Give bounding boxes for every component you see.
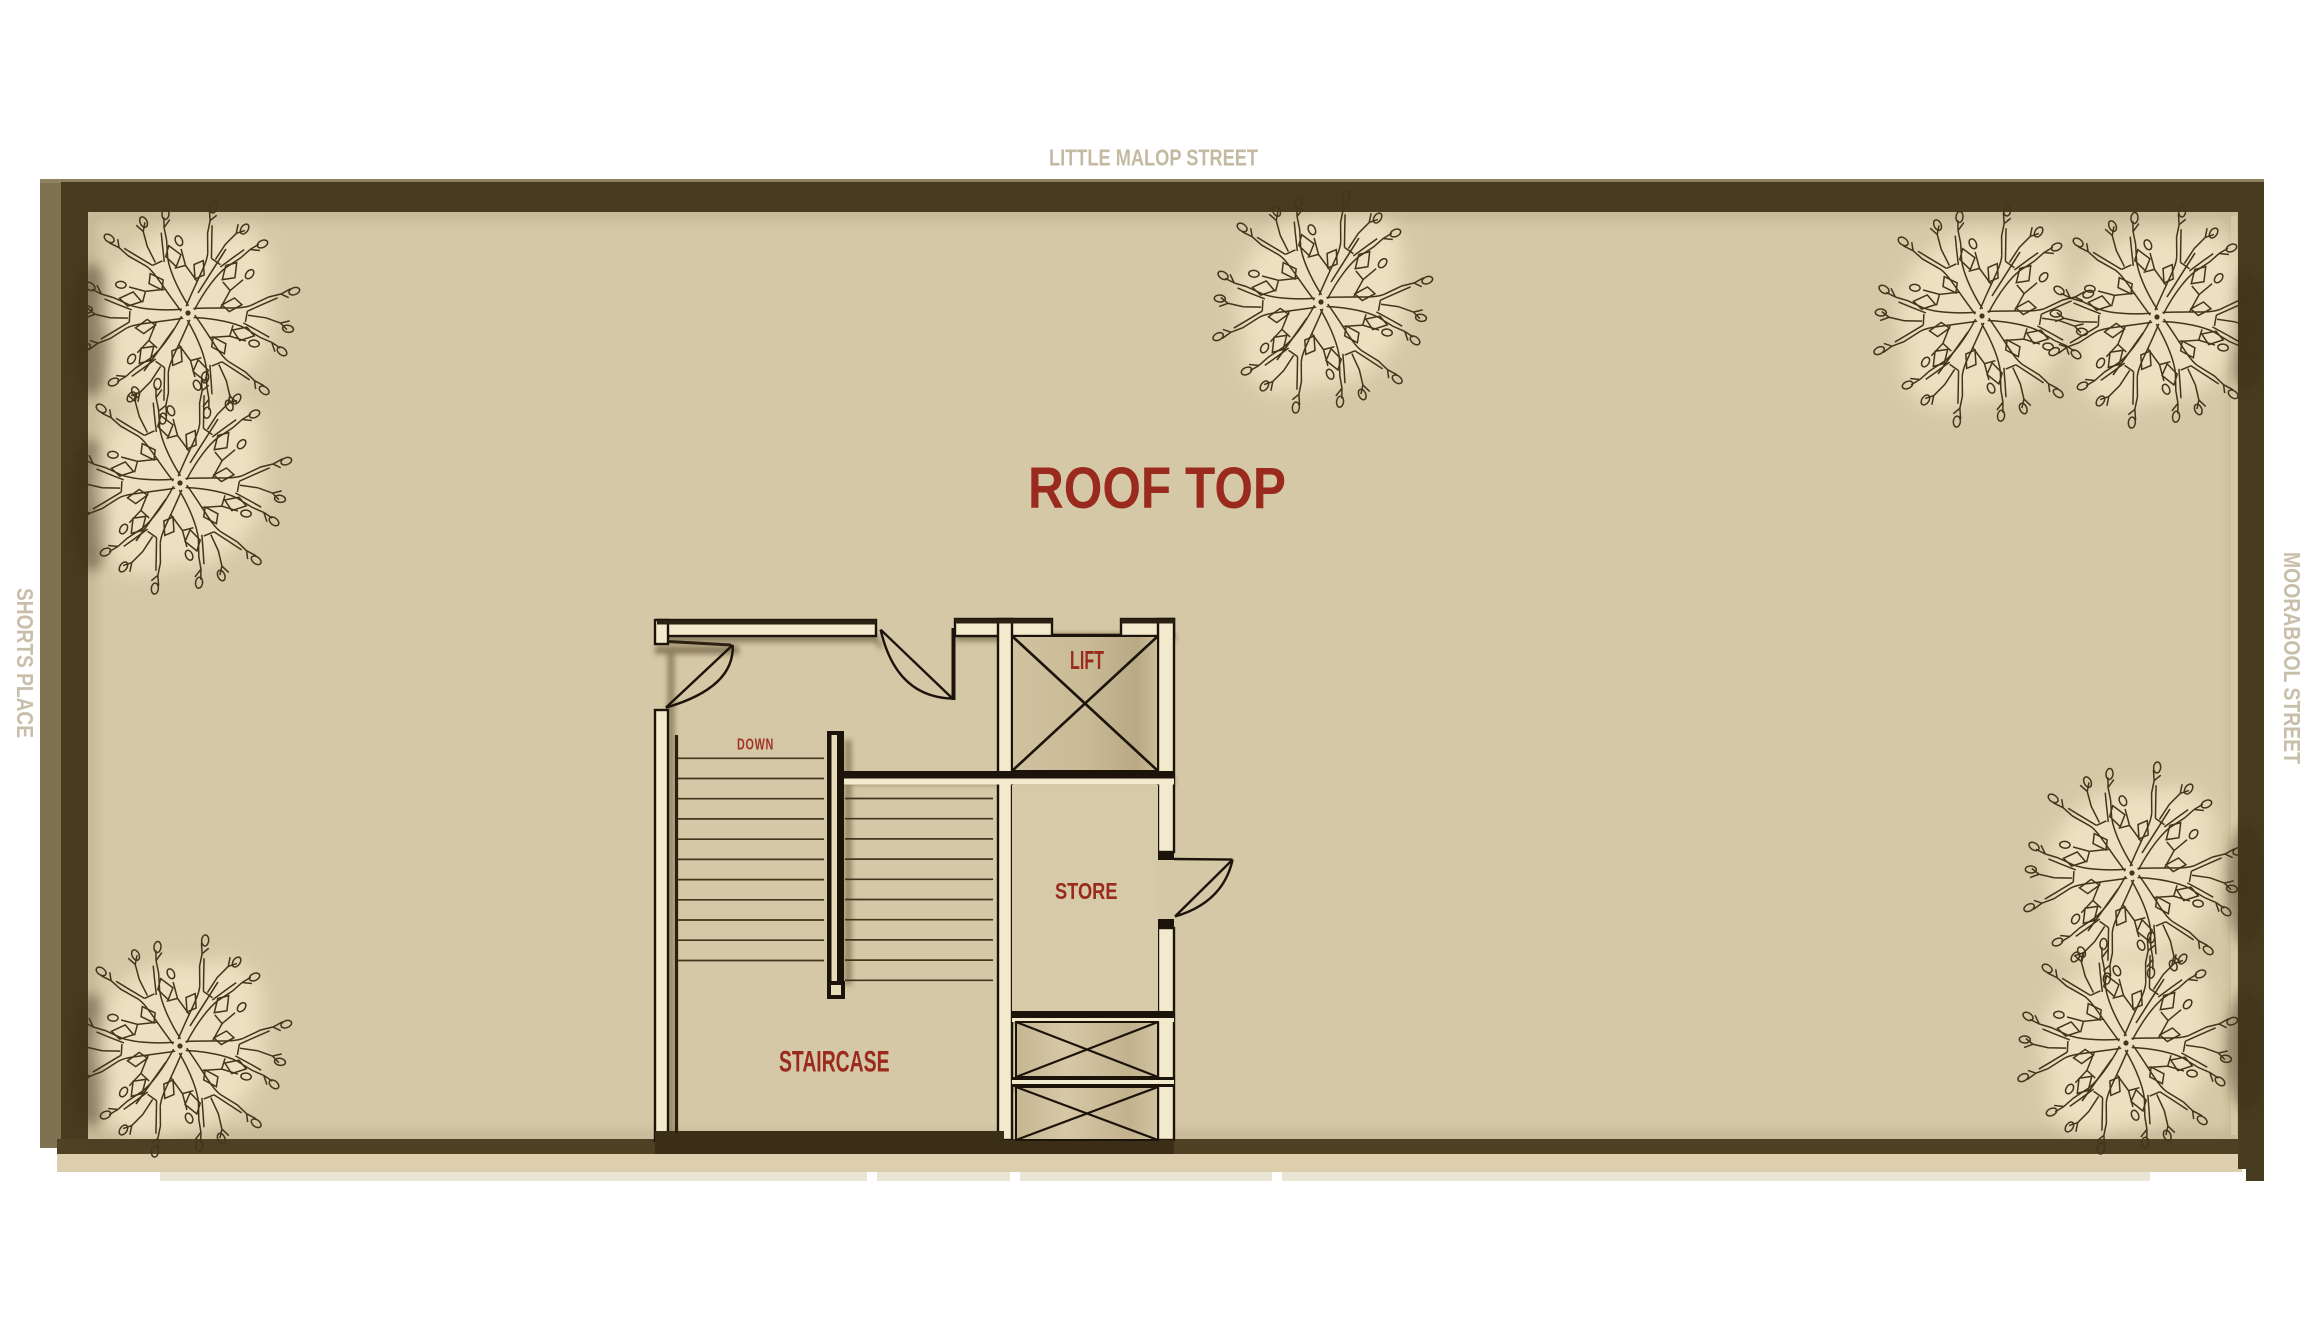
svg-text:MOORABOOL STREET: MOORABOOL STREET [2279,552,2305,764]
svg-text:ROOF TOP: ROOF TOP [1028,456,1286,521]
svg-text:SHORTS PLACE: SHORTS PLACE [12,588,38,738]
svg-text:LITTLE MALOP STREET: LITTLE MALOP STREET [1049,145,1258,171]
svg-text:STORE: STORE [1055,878,1118,904]
svg-text:LIFT: LIFT [1070,647,1104,675]
svg-text:DOWN: DOWN [737,737,774,754]
svg-text:STAIRCASE: STAIRCASE [779,1046,890,1079]
